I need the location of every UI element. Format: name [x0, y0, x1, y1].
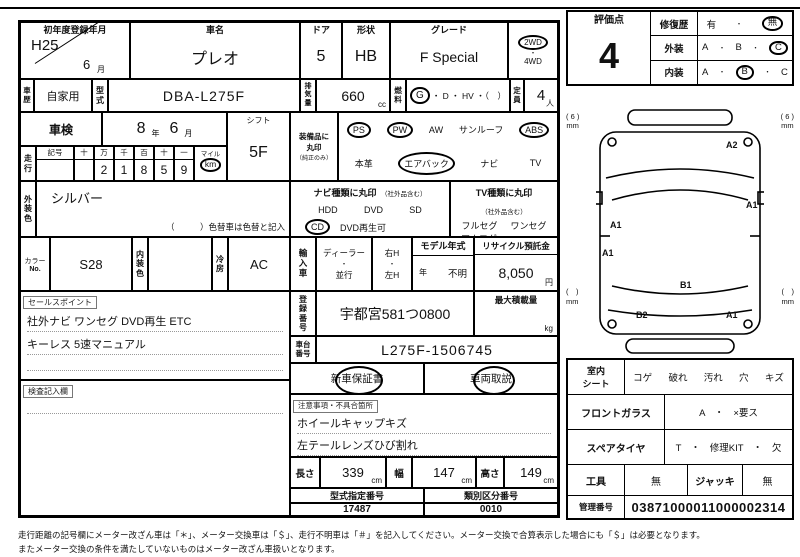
exterior-grade-row: 外装 A ・ B ・ C	[651, 36, 792, 60]
car-name-value: プレオ	[131, 36, 299, 78]
exterior-color-label-cell: 外装色	[20, 181, 36, 237]
tv-fullseg: フルセグ	[461, 219, 497, 232]
tread-depth-bottom-right: ( )mm	[782, 286, 795, 306]
equipment-navi: ナビ	[480, 157, 498, 170]
nav-sd: SD	[409, 205, 422, 215]
tv-type-cell: TV種類に丸印 （社外品含む） フルセグ ワンセグ アナログ	[450, 181, 558, 237]
recycle-deposit-unit: 円	[545, 277, 553, 288]
seat-opt-stain: 汚れ	[704, 370, 723, 384]
shift-label: シフト	[228, 116, 289, 126]
mileage-symbol-value	[37, 160, 73, 180]
drivetrain-4wd: 4WD	[524, 57, 542, 66]
height-label: 高さ	[476, 457, 504, 488]
first-registration-label: 初年度登録年月	[21, 25, 129, 36]
registration-month-unit: 月	[97, 64, 105, 75]
width-label: 幅	[386, 457, 412, 488]
equipment-sunroof: サンルーフ	[459, 123, 503, 136]
management-no-row: 管理番号 03871000011000002314	[568, 496, 792, 518]
digit-header: 一	[175, 147, 193, 160]
main-table: 初年度登録年月 H25 6 月 車名 プレオ ドア 5 形状 HB グレード F…	[18, 20, 560, 518]
damage-zone-a2: A2	[726, 140, 738, 150]
displacement-label-cell: 排気量	[300, 79, 316, 112]
drivetrain-cell: 2WD ・ 4WD	[508, 22, 558, 79]
inspection-entry-empty-line	[27, 399, 283, 414]
import-dealer: ディーラー	[323, 247, 365, 259]
equipment-leather: 本革	[355, 157, 373, 170]
fuel-label-cell: 燃料	[390, 79, 406, 112]
nav-type-cell: ナビ種類に丸印 （社外品含む） HDD DVD SD CD DVD再生可	[290, 181, 450, 237]
shaken-value-cell: 8 年 6 月	[102, 112, 227, 146]
defect-note-1: ホイールキャップキズ	[297, 415, 551, 434]
length-label: 長さ	[290, 457, 320, 488]
model-year-value: 不明	[448, 266, 467, 280]
interior-grade-label: 内装	[651, 61, 698, 84]
digit-value: 5	[155, 160, 173, 180]
mileage-digit-col: 十 5	[154, 146, 174, 181]
tread-depth-top-right: ( 6 )mm	[781, 112, 794, 130]
grade-cell: グレード F Special	[390, 22, 508, 79]
registration-month: 6	[83, 57, 90, 72]
inspection-entry-label: 検査記入欄	[23, 385, 73, 398]
footer-note-2: またメーター交換の条件を満たしていないものはメーター改ざん車扱いとなります。	[18, 543, 788, 555]
history-value: 自家用	[34, 79, 92, 112]
seat-condition-label: 室内シート	[568, 360, 625, 394]
equipment-pw-circled: PW	[387, 122, 414, 138]
jack-label: ジャッキ	[688, 465, 743, 495]
windshield-row: フロントガラス A ・ ×要ス	[568, 395, 792, 430]
nav-type-note: （社外品含む）	[381, 191, 427, 198]
model-year-label: モデル年式	[413, 238, 473, 256]
management-no-label: 管理番号	[568, 496, 625, 518]
ac-value: AC	[228, 237, 290, 291]
digit-value: 2	[95, 160, 113, 180]
exterior-color-cell: シルバー （ ）色替車は色替と記入	[36, 181, 290, 237]
repair-yes: 有	[707, 17, 717, 31]
defect-note-2: 左テールレンズひび割れ	[297, 437, 551, 456]
mileage-mile-label: マイル	[201, 148, 221, 158]
damage-zone-b1: B1	[680, 280, 692, 290]
seat-condition-row: 室内シート コゲ 破れ 汚れ 穴 キズ	[568, 360, 792, 395]
exterior-grade-label: 外装	[651, 36, 698, 59]
seat-opt-burn: コゲ	[633, 370, 652, 384]
equipment-abs-circled: ABS	[519, 122, 549, 138]
equipment-tv: TV	[530, 158, 542, 168]
score-label: 評価点	[568, 15, 650, 27]
equipment-label-2: 丸印	[307, 142, 322, 153]
sales-point-empty-line	[27, 355, 283, 371]
max-load-cell: 最大積載量 kg	[474, 291, 558, 336]
tv-type-title: TV種類に丸印	[476, 188, 533, 198]
max-load-unit: kg	[545, 324, 553, 333]
height-unit: cm	[543, 476, 554, 485]
seat-opt-scratch: キズ	[765, 370, 784, 384]
new-car-warranty-label: 新車保証書	[331, 371, 384, 386]
interior-grade-row: 内装 A ・ B ・ C	[651, 61, 792, 84]
sales-point-empty-line	[27, 371, 283, 380]
history-label-cell: 車歴	[20, 79, 34, 112]
nav-type-row-1: HDD DVD SD	[291, 201, 449, 219]
digit-header: 十	[75, 147, 93, 160]
digit-value: 1	[115, 160, 133, 180]
auction-sheet: 初年度登録年月 H25 6 月 車名 プレオ ドア 5 形状 HB グレード F…	[0, 0, 800, 557]
score-cell: 評価点 4	[568, 12, 651, 84]
equipment-label-1: 装備品に	[299, 131, 329, 142]
seat-opt-tear: 破れ	[668, 370, 687, 384]
spare-tire-value: T ・ 修理KIT ・ 欠	[665, 430, 792, 464]
grade-label: グレード	[391, 25, 507, 36]
nav-type-row-2: CD DVD再生可	[291, 219, 449, 237]
color-no-label-1: カラー	[25, 256, 46, 266]
doors-value: 5	[301, 36, 341, 78]
width-value-cell: 147 cm	[412, 457, 476, 488]
tools-value: 無	[625, 465, 688, 495]
length-value-cell: 339 cm	[320, 457, 386, 488]
chassis-no-value: L275F-1506745	[316, 336, 558, 363]
shaken-label-cell: 車検	[20, 112, 102, 146]
color-no-label-2: No.	[29, 266, 40, 273]
windshield-value: A ・ ×要ス	[665, 395, 792, 429]
car-top-view	[596, 106, 764, 354]
color-no-value: S28	[50, 237, 132, 291]
shaken-month: 6	[170, 120, 179, 138]
footer-note-1: 走行距離の記号欄にメーター改ざん車は「＊」、メーター交換車は「＄」、走行不明車は…	[18, 529, 788, 541]
exterior-grade-c-circled: C	[769, 41, 788, 56]
defect-notes-label: 注意事項・不具合箇所	[293, 400, 378, 413]
capacity-label-cell: 定員	[510, 79, 524, 112]
car-damage-diagram: ( 6 )mm ( 6 )mm ( )mm ( )mm	[566, 100, 794, 356]
recycle-deposit-cell: リサイクル預託金 8,050 円	[474, 237, 558, 291]
color-no-label-cell: カラー No.	[20, 237, 50, 291]
displacement-unit: cc	[378, 100, 386, 109]
damage-zone-a1-right: A1	[746, 200, 758, 210]
model-code-label-cell: 型式	[92, 79, 108, 112]
condition-box: 室内シート コゲ 破れ 汚れ 穴 キズ フロントガラス A ・ ×要ス スペアタ…	[566, 358, 794, 520]
equipment-airbag-circled: エアバック	[404, 157, 449, 170]
model-code-value: DBA-L275F	[108, 79, 300, 112]
type-designation-header: 型式指定番号	[290, 488, 424, 503]
nav-hdd: HDD	[318, 205, 338, 215]
import-handle-cell: 右H ・ 左H	[372, 237, 412, 291]
import-label-cell: 輸入車	[290, 237, 316, 291]
equipment-aw: AW	[429, 125, 443, 135]
interior-grade-c: C	[781, 67, 788, 78]
chassis-no-label-cell: 車台番号	[290, 336, 316, 363]
new-car-warranty-cell: 新車保証書	[290, 363, 424, 394]
interior-grade-a: A	[702, 67, 708, 78]
import-dealer-cell: ディーラー ・ 並行	[316, 237, 372, 291]
drivetrain-dot: ・	[530, 50, 537, 57]
jack-value: 無	[743, 465, 792, 495]
score-value: 4	[568, 27, 650, 84]
mileage-digit-col: 一 9	[174, 146, 194, 181]
repair-history-row: 修復歴 有 ・ 無	[651, 12, 792, 36]
exterior-color-value: シルバー	[37, 182, 289, 207]
mileage-symbol-col: 記号	[36, 146, 74, 181]
nav-dvd-playback: DVD再生可	[340, 221, 386, 234]
windshield-label: フロントガラス	[568, 395, 665, 429]
import-dot: ・	[341, 259, 348, 269]
spare-tire-row: スペアタイヤ T ・ 修理KIT ・ 欠	[568, 430, 792, 465]
displacement-cell: 660 cc	[316, 79, 390, 112]
mileage-label-cell: 走行	[20, 146, 36, 181]
score-box: 評価点 4 修復歴 有 ・ 無 外装 A ・ B ・ C	[566, 10, 794, 86]
mileage-unit-cell: マイル km	[194, 146, 227, 181]
import-parallel: 並行	[335, 269, 352, 281]
equipment-row-1: PS PW AW サンルーフ ABS	[339, 113, 557, 147]
registration-no-label-cell: 登録番号	[290, 291, 316, 336]
defect-notes-box: 注意事項・不具合箇所 ホイールキャップキズ 左テールレンズひび割れ	[290, 394, 558, 457]
shaken-month-unit: 月	[184, 128, 192, 139]
shaken-year: 8	[137, 120, 146, 138]
model-year-unit: 年	[419, 267, 427, 278]
sales-point-line-2: キーレス 5速マニュアル	[27, 336, 283, 355]
equipment-ps-circled: PS	[347, 122, 371, 138]
digit-value: 8	[135, 160, 153, 180]
shape-value: HB	[343, 36, 389, 78]
exterior-grade-a: A	[702, 42, 708, 53]
sales-points-box: セールスポイント 社外ナビ ワンセグ DVD再生 ETC キーレス 5速マニュア…	[20, 291, 290, 380]
registration-no-value: 宇都宮581つ0800	[316, 291, 474, 336]
fuel-gasoline-circled: G	[410, 87, 430, 105]
sales-points-label: セールスポイント	[23, 296, 97, 309]
grade-value: F Special	[391, 36, 507, 78]
ac-label-cell: 冷房	[212, 237, 228, 291]
exterior-color-note: （ ）色替車は色替と記入	[166, 221, 285, 233]
damage-zone-a1-left-2: A1	[602, 248, 614, 258]
interior-color-value	[148, 237, 212, 291]
repair-history-label: 修復歴	[651, 12, 698, 35]
class-designation-value: 0010	[424, 503, 558, 516]
car-name-cell: 車名 プレオ	[130, 22, 300, 79]
capacity-unit: 人	[546, 98, 554, 109]
tv-type-row-1: フルセグ ワンセグ	[451, 219, 557, 232]
height-value-cell: 149 cm	[504, 457, 558, 488]
first-registration-cell: 初年度登録年月 H25 6 月	[20, 22, 130, 79]
nav-dvd: DVD	[364, 205, 383, 215]
equipment-options-cell: PS PW AW サンルーフ ABS 本革 エアバック ナビ TV	[338, 112, 558, 181]
digit-value	[75, 160, 93, 180]
nav-cd-circled: CD	[305, 219, 330, 235]
interior-grade-b-circled: B	[736, 65, 754, 80]
seat-opt-hole: 穴	[739, 370, 749, 384]
shaken-year-unit: 年	[152, 128, 160, 139]
exterior-grade-b: B	[736, 42, 742, 53]
sales-point-line-1: 社外ナビ ワンセグ DVD再生 ETC	[27, 313, 283, 332]
import-left-handle: 左H	[385, 269, 400, 281]
car-name-label: 車名	[131, 25, 299, 36]
interior-color-label-cell: 内装色	[132, 237, 148, 291]
mileage-km-circled: km	[200, 158, 221, 172]
vehicle-manual-label: 車両取説	[470, 371, 512, 386]
max-load-label: 最大積載量	[475, 295, 557, 305]
drivetrain-2wd-circled: 2WD	[518, 35, 548, 50]
digit-value: 9	[175, 160, 193, 180]
tv-oneseg: ワンセグ	[510, 219, 546, 232]
doors-cell: ドア 5	[300, 22, 342, 79]
registration-era: H25	[31, 37, 59, 54]
import-handle-dot: ・	[389, 259, 396, 269]
fuel-options: ・ D ・ HV ・（ ）	[432, 90, 506, 102]
equipment-row-2: 本革 エアバック ナビ TV	[339, 147, 557, 181]
digit-header: 千	[115, 147, 133, 160]
management-no-value: 03871000011000002314	[625, 496, 792, 518]
recycle-deposit-label: リサイクル預託金	[475, 238, 557, 255]
shape-label: 形状	[343, 25, 389, 36]
mileage-digit-col: 万 2	[94, 146, 114, 181]
mileage-digit-col: 十	[74, 146, 94, 181]
equipment-label-cell: 装備品に 丸印 （純正のみ）	[290, 112, 338, 181]
vehicle-manual-cell: 車両取説	[424, 363, 558, 394]
class-designation-header: 類別区分番号	[424, 488, 558, 503]
inspection-entry-box: 検査記入欄	[20, 380, 290, 516]
type-designation-value: 17487	[290, 503, 424, 516]
capacity-cell: 4 人	[524, 79, 558, 112]
model-year-cell: モデル年式 年 不明	[412, 237, 474, 291]
equipment-label-3: （純正のみ）	[296, 153, 332, 162]
nav-type-title: ナビ種類に丸印	[314, 188, 377, 198]
tools-row: 工具 無 ジャッキ 無	[568, 465, 792, 496]
width-unit: cm	[461, 476, 472, 485]
tread-depth-top-left: ( 6 )mm	[566, 112, 579, 130]
shift-value: 5F	[228, 126, 289, 180]
import-right-handle: 右H	[385, 247, 400, 259]
fuel-cell: G ・ D ・ HV ・（ ）	[406, 79, 510, 112]
top-rule	[0, 7, 800, 9]
tread-depth-bottom-left: ( )mm	[566, 286, 579, 306]
shift-cell: シフト 5F	[227, 112, 290, 181]
tools-label: 工具	[568, 465, 625, 495]
spare-tire-label: スペアタイヤ	[568, 430, 665, 464]
tv-type-note: （社外品含む）	[481, 209, 527, 216]
digit-header: 百	[135, 147, 153, 160]
damage-zone-a1-rear: A1	[726, 310, 738, 320]
repair-no-circled: 無	[762, 16, 784, 31]
damage-zone-b2: B2	[636, 310, 648, 320]
length-unit: cm	[371, 476, 382, 485]
digit-header: 万	[95, 147, 113, 160]
mileage-symbol-header: 記号	[37, 147, 73, 160]
shape-cell: 形状 HB	[342, 22, 390, 79]
damage-zone-a1-left: A1	[610, 220, 622, 230]
digit-header: 十	[155, 147, 173, 160]
mileage-digit-col: 百 8	[134, 146, 154, 181]
doors-label: ドア	[301, 25, 341, 36]
mileage-digit-col: 千 1	[114, 146, 134, 181]
